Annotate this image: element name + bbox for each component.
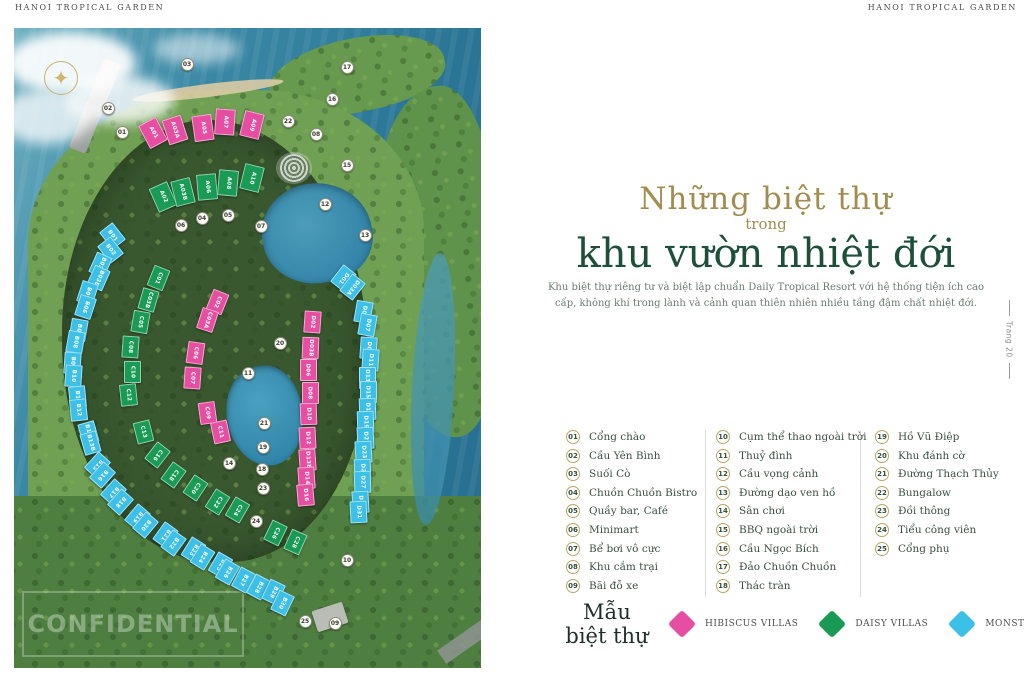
header-left: HANOI TROPICAL GARDEN	[15, 3, 164, 12]
villa-plot-A08: A08	[217, 169, 239, 197]
legend-column: 01Cổng chào02Cầu Yên Bình03Suối Cò04Chuồ…	[566, 430, 706, 597]
legend-item: 14Sân chơi	[716, 504, 854, 518]
legend-item-label: Minimart	[589, 524, 639, 536]
legend-item: 23Đồi thông	[875, 504, 995, 518]
page-number: Trang 20	[1005, 321, 1014, 358]
legend-item: 06Minimart	[566, 523, 699, 537]
map-marker-10: 10	[341, 554, 354, 567]
map-marker-19: 19	[257, 441, 270, 454]
map-marker-06: 06	[175, 219, 188, 232]
villa-types-title-line2: biệt thự	[564, 624, 650, 648]
legend-item: 24Tiểu công viên	[875, 523, 995, 537]
villa-plot-D06: D06	[300, 359, 317, 381]
legend-number-badge: 09	[566, 579, 580, 593]
legend-item: 17Đảo Chuồn Chuồn	[716, 560, 854, 574]
legend-column: 19Hồ Vũ Điệp20Khu đánh cờ21Đường Thạch T…	[875, 430, 995, 597]
legend-item-label: Đồi thông	[898, 505, 950, 517]
villa-type: HIBISCUS VILLAS	[672, 614, 798, 634]
villa-plot-C06: C06	[185, 341, 205, 365]
legend-item: 08Khu cắm trại	[566, 560, 699, 574]
legend-item-label: BBQ ngoài trời	[739, 524, 818, 536]
villa-type-label: DAISY VILLAS	[855, 619, 928, 629]
legend-number-badge: 02	[566, 449, 580, 463]
map-marker-24: 24	[250, 515, 263, 528]
legend-item-label: Cầu vọng cảnh	[739, 468, 818, 480]
legend-item-label: Suối Cò	[589, 468, 630, 480]
villa-type-label: MONSTERA VILLAS	[985, 619, 1024, 629]
legend-item-label: Khu cắm trại	[589, 561, 658, 573]
map-marker-18: 18	[256, 463, 269, 476]
map-marker-21: 21	[258, 417, 271, 430]
legend-number-badge: 01	[566, 430, 580, 444]
legend-item-label: Quầy bar, Café	[589, 505, 668, 517]
legend-number-badge: 13	[716, 486, 730, 500]
map-marker-12: 12	[319, 198, 332, 211]
villa-type-label: HIBISCUS VILLAS	[705, 619, 798, 629]
title-line1: Những biệt thự	[520, 182, 1012, 216]
map-marker-22: 22	[282, 115, 295, 128]
legend-item: 09Bãi đỗ xe	[566, 579, 699, 593]
legend-item: 21Đường Thạch Thủy	[875, 467, 995, 481]
map-marker-17: 17	[341, 61, 354, 74]
villa-plot-D02: D02	[303, 310, 321, 333]
legend-item-label: Cầu Ngọc Bích	[739, 543, 819, 555]
watermark: CONFIDENTIAL	[22, 591, 244, 657]
villa-plot-B08: B08	[65, 330, 86, 355]
legend-number-badge: 23	[875, 504, 889, 518]
legend-number-badge: 10	[716, 430, 730, 444]
map-marker-20: 20	[274, 337, 287, 350]
villa-type: DAISY VILLAS	[822, 614, 928, 634]
legend-item-label: Hồ Vũ Điệp	[898, 431, 959, 443]
legend-number-badge: 17	[716, 560, 730, 574]
legend-number-badge: 20	[875, 449, 889, 463]
legend-item-label: Sân chơi	[739, 505, 785, 517]
legend-item-label: Chuồn Chuồn Bistro	[589, 487, 697, 499]
legend-column: 10Cụm thể thao ngoài trời11Thuỷ đình12Cầ…	[716, 430, 861, 597]
map-marker-03: 03	[181, 58, 194, 71]
map-marker-13: 13	[359, 229, 372, 242]
legend-item: 20Khu đánh cờ	[875, 449, 995, 463]
legend-number-badge: 18	[716, 579, 730, 593]
legend-number-badge: 12	[716, 467, 730, 481]
legend-item: 04Chuồn Chuồn Bistro	[566, 486, 699, 500]
legend-item-label: Cổng phụ	[898, 543, 950, 555]
villa-plot-D03B: D03B	[301, 337, 319, 360]
legend-number-badge: 15	[716, 523, 730, 537]
villa-plot-A07: A07	[214, 108, 236, 135]
legend-item: 16Cầu Ngọc Bích	[716, 542, 854, 556]
page-title: Những biệt thự trong khu vườn nhiệt đới	[520, 182, 1012, 276]
villa-plot-D12: D12	[298, 427, 316, 450]
legend-item: 10Cụm thể thao ngoài trời	[716, 430, 854, 444]
map-marker-04: 04	[196, 212, 209, 225]
legend-item-label: Thác tràn	[739, 580, 791, 592]
villa-plot-D16: D16	[296, 483, 315, 506]
legend-number-badge: 16	[716, 542, 730, 556]
legend-number-badge: 25	[875, 542, 889, 556]
legend-item: 18Thác tràn	[716, 579, 854, 593]
villa-plot-C08: C08	[121, 335, 139, 358]
villa-plot-C12: C12	[118, 383, 137, 407]
title-line3: khu vườn nhiệt đới	[520, 232, 1012, 276]
legend-item: 13Đường dạo ven hồ	[716, 486, 854, 500]
villa-type-diamond-icon	[668, 610, 696, 638]
villa-type-diamond-icon	[948, 610, 976, 638]
legend-item-label: Đảo Chuồn Chuồn	[739, 561, 836, 573]
legend-item: 19Hồ Vũ Điệp	[875, 430, 995, 444]
villa-plot-B12: B12	[68, 398, 87, 422]
villa-plot-C05: C05	[130, 310, 151, 335]
legend-number-badge: 08	[566, 560, 580, 574]
description: Khu biệt thự riêng tư và biệt lập chuẩn …	[541, 280, 991, 311]
map-marker-14: 14	[223, 457, 236, 470]
title-line2: trong	[520, 216, 1012, 232]
villa-types-items: HIBISCUS VILLASDAISY VILLASMONSTERA VILL…	[672, 614, 1024, 634]
legend-item-label: Khu đánh cờ	[898, 450, 965, 462]
villa-plot-C07: C07	[183, 366, 201, 389]
villa-plot-D10: D10	[299, 403, 317, 426]
legend-item: 01Cổng chào	[566, 430, 699, 444]
legend-item-label: Cầu Yên Bình	[589, 450, 661, 462]
villa-plot-A06: A06	[196, 173, 218, 201]
legend-item: 12Cầu vọng cảnh	[716, 467, 854, 481]
site-map: ✦ CONFIDENTIAL A01A03AA05A07A09A02A03BA0…	[14, 28, 481, 668]
legend-item: 05Quầy bar, Café	[566, 504, 699, 518]
labyrinth-garden	[278, 154, 310, 182]
compass-icon: ✦	[44, 61, 78, 95]
legend-item: 03Suối Cò	[566, 467, 699, 481]
legend-number-badge: 22	[875, 486, 889, 500]
map-marker-15: 15	[341, 159, 354, 172]
legend-item: 15BBQ ngoài trời	[716, 523, 854, 537]
legend-number-badge: 24	[875, 523, 889, 537]
legend-item-label: Bungalow	[898, 487, 951, 499]
map-marker-11: 11	[242, 367, 255, 380]
legend-item-label: Đường Thạch Thủy	[898, 468, 999, 480]
villa-plot-B10: B10	[64, 364, 82, 387]
page-tab-rule	[1009, 300, 1010, 316]
legend-number-badge: 07	[566, 542, 580, 556]
villa-plot-D07: D07	[357, 313, 378, 338]
legend-number-badge: 21	[875, 467, 889, 481]
cloud	[154, 34, 240, 64]
villa-plot-C10: C10	[124, 361, 141, 383]
villa-type-diamond-icon	[818, 610, 846, 638]
legend-item-label: Tiểu công viên	[898, 524, 976, 536]
villa-plot-A05: A05	[191, 114, 214, 143]
legend-item: 22Bungalow	[875, 486, 995, 500]
villa-types-title-line1: Mẫu	[564, 600, 650, 624]
legend-item-label: Bãi đỗ xe	[589, 580, 638, 592]
legend-number-badge: 06	[566, 523, 580, 537]
legend-item: 11Thuỷ đình	[716, 449, 854, 463]
legend-item-label: Thuỷ đình	[739, 450, 792, 462]
legend-number-badge: 19	[875, 430, 889, 444]
map-marker-16: 16	[326, 93, 339, 106]
legend-number-badge: 05	[566, 504, 580, 518]
map-marker-08: 08	[310, 128, 323, 141]
legend-item-label: Cụm thể thao ngoài trời	[739, 431, 866, 443]
legend-item-label: Bể bơi vô cực	[589, 543, 660, 555]
legend-number-badge: 14	[716, 504, 730, 518]
villa-plot-D31: D31	[349, 501, 367, 524]
page-number-tab: Trang 20	[1000, 300, 1018, 379]
villa-plot-D08: D08	[302, 382, 319, 404]
legend-item-label: Cổng chào	[589, 431, 646, 443]
map-marker-07: 07	[255, 220, 268, 233]
right-panel: Những biệt thự trong khu vườn nhiệt đới …	[520, 0, 1012, 679]
legend-number-badge: 04	[566, 486, 580, 500]
legend-item: 07Bể bơi vô cực	[566, 542, 699, 556]
map-marker-01: 01	[116, 126, 129, 139]
legend-item: 02Cầu Yên Bình	[566, 449, 699, 463]
map-marker-25: 25	[299, 615, 312, 628]
map-marker-23: 23	[257, 482, 270, 495]
legend-item: 25Cổng phụ	[875, 542, 995, 556]
legend-columns: 01Cổng chào02Cầu Yên Bình03Suối Cò04Chuồ…	[566, 430, 995, 597]
villa-types-title: Mẫu biệt thự	[564, 600, 650, 648]
legend-number-badge: 03	[566, 467, 580, 481]
page-tab-rule	[1009, 363, 1010, 379]
villa-type: MONSTERA VILLAS	[952, 614, 1024, 634]
legend-number-badge: 11	[716, 449, 730, 463]
legend-item-label: Đường dạo ven hồ	[739, 487, 835, 499]
villa-types: Mẫu biệt thự HIBISCUS VILLASDAISY VILLAS…	[564, 600, 1024, 648]
map-marker-02: 02	[102, 102, 115, 115]
map-marker-05: 05	[222, 209, 235, 222]
map-marker-09: 09	[329, 617, 342, 630]
